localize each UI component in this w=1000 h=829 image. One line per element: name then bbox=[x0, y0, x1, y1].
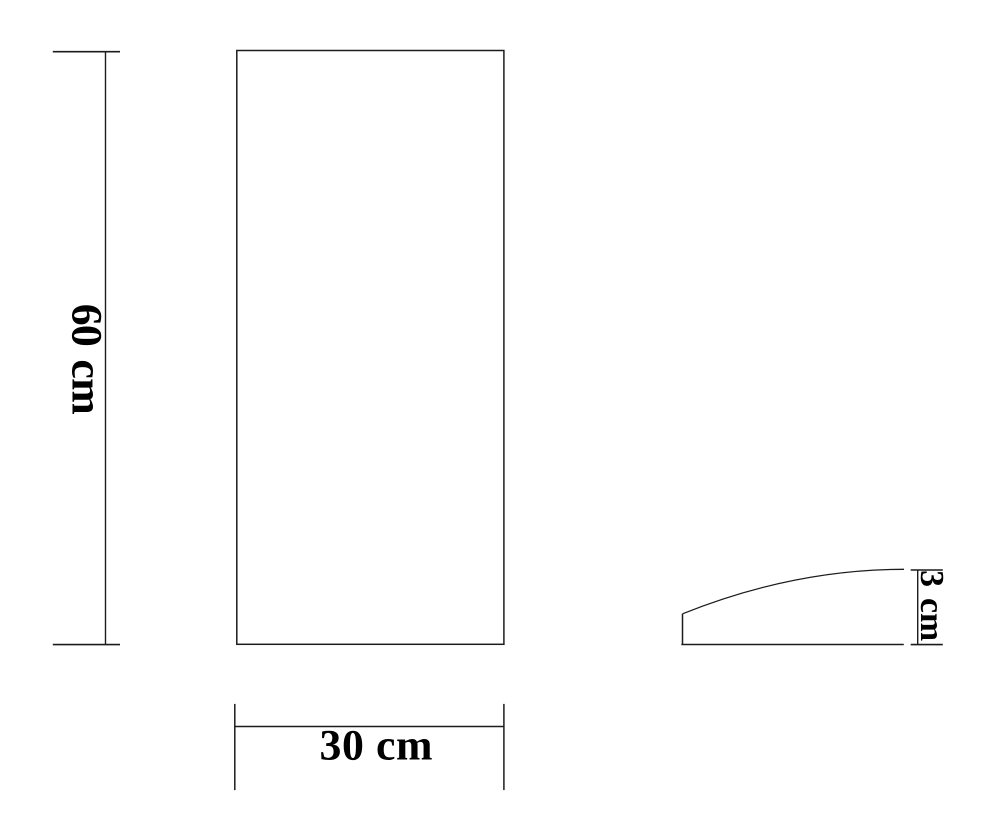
svg-text:3 cm: 3 cm bbox=[913, 570, 950, 641]
svg-text:60 cm: 60 cm bbox=[63, 304, 111, 415]
svg-text:30 cm: 30 cm bbox=[320, 721, 433, 769]
